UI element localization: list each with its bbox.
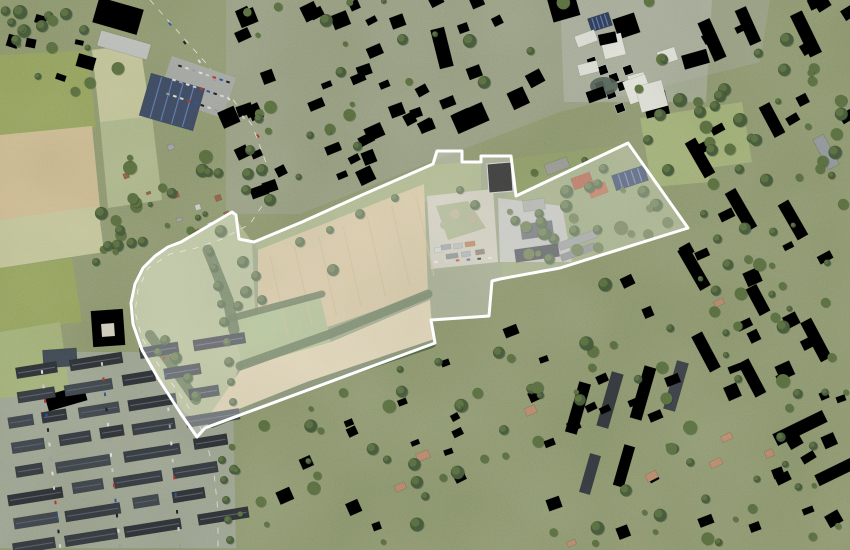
aerial-screenshot-root [0,0,850,550]
grain-texture-layer [0,0,850,550]
grain-texture [0,0,850,550]
aerial-photo-canvas [0,0,850,550]
